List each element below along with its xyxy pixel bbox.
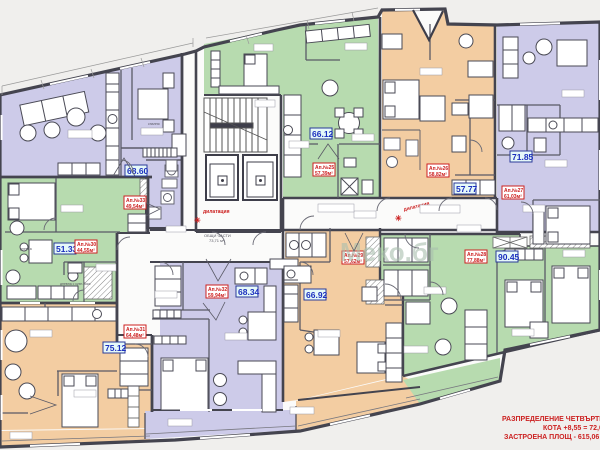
svg-text:68.34: 68.34 (238, 287, 260, 297)
svg-text:44,55м²: 44,55м² (77, 248, 95, 254)
svg-text:✳: ✳ (395, 214, 402, 223)
svg-text:дневна с кухн.бокс: дневна с кухн.бокс (60, 282, 91, 286)
svg-text:спалня: спалня (148, 122, 160, 126)
svg-text:51.33: 51.33 (56, 244, 78, 254)
svg-text:77,88м²: 77,88м² (467, 258, 485, 264)
svg-text:РАЗПРЕДЕЛЕНИЕ ЧЕТВЪРТИ ЕТАЖ: РАЗПРЕДЕЛЕНИЕ ЧЕТВЪРТИ ЕТАЖ (502, 416, 600, 423)
svg-text:90.45: 90.45 (498, 252, 520, 262)
svg-text:58,82м²: 58,82м² (429, 172, 447, 178)
svg-text:57,39м²: 57,39м² (315, 171, 333, 177)
svg-text:73,71 м²: 73,71 м² (209, 238, 225, 243)
svg-text:КОТА +8,55 = 72,05: КОТА +8,55 = 72,05 (543, 425, 600, 432)
svg-text:✳: ✳ (194, 216, 201, 225)
svg-text:66.92: 66.92 (306, 290, 328, 300)
svg-text:64,48м²: 64,48м² (126, 333, 144, 339)
svg-text:Меко.бг: Меко.бг (340, 237, 439, 267)
svg-text:дневна: дневна (20, 247, 32, 251)
svg-text:ЗАСТРОЕНА ПЛОЩ - 615,06 м²: ЗАСТРОЕНА ПЛОЩ - 615,06 м² (504, 434, 600, 441)
svg-text:49,54м²: 49,54м² (126, 204, 144, 210)
svg-text:71.85: 71.85 (512, 152, 534, 162)
svg-text:дилатация: дилатация (203, 209, 230, 215)
svg-text:57.77: 57.77 (456, 184, 478, 194)
svg-text:59,94м²: 59,94м² (208, 293, 226, 299)
svg-text:66.12: 66.12 (312, 129, 334, 139)
svg-text:75.12: 75.12 (105, 343, 127, 353)
svg-text:61,03м²: 61,03м² (504, 194, 522, 200)
